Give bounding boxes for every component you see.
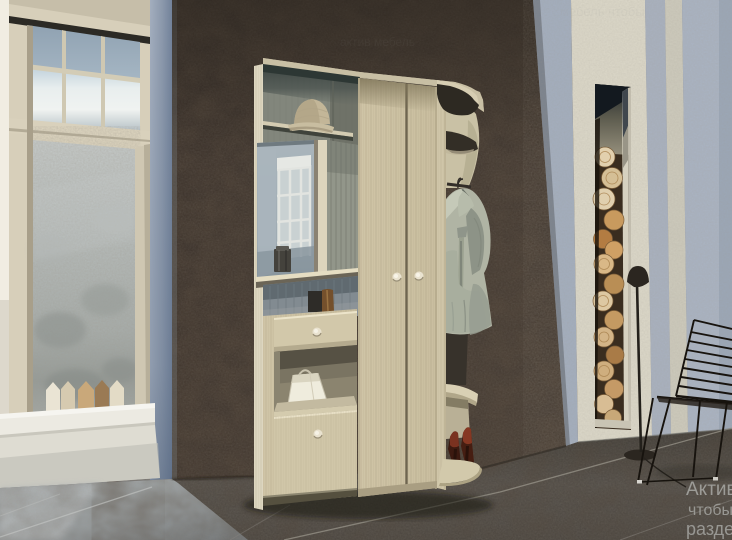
svg-text:мебель чтобы: мебель чтобы xyxy=(560,4,645,19)
svg-text:раздел: раздел xyxy=(686,519,732,539)
svg-text:чтобы п: чтобы п xyxy=(688,502,732,519)
svg-text:актив мебель: актив мебель xyxy=(340,35,415,49)
svg-text:Актив: Актив xyxy=(686,479,732,500)
